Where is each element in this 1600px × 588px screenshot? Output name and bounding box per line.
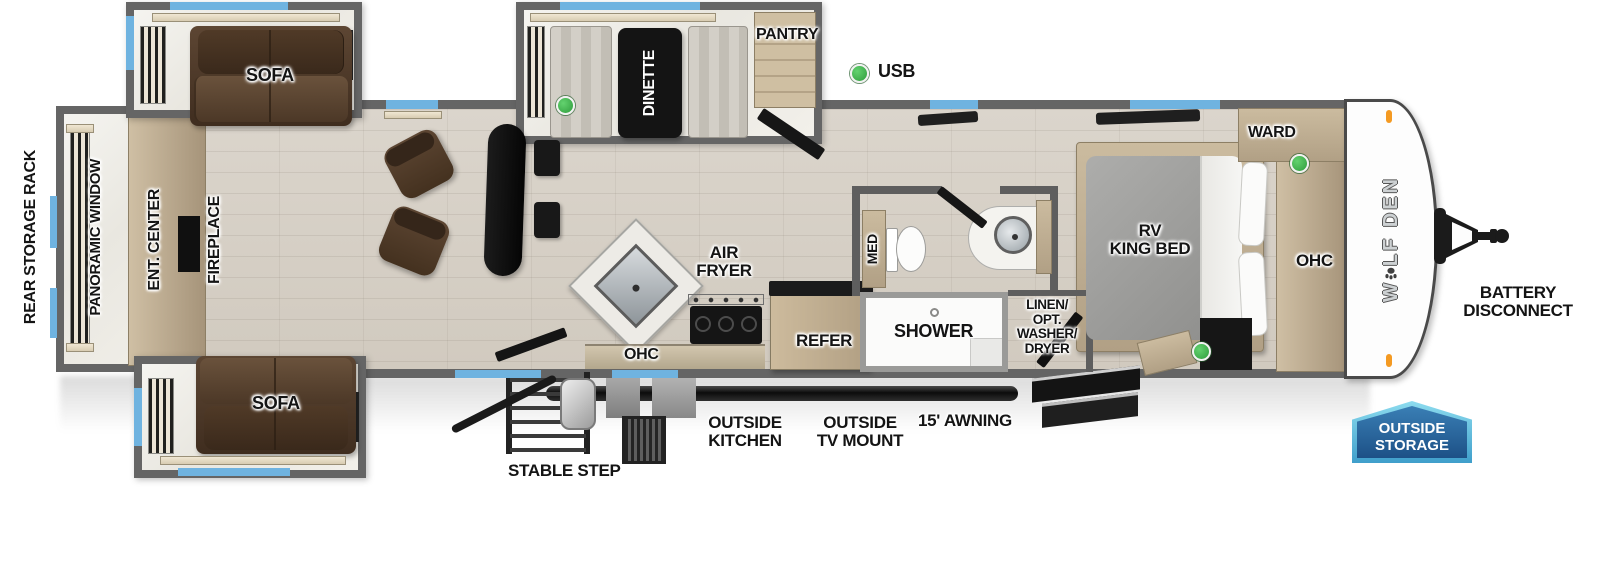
stove-knob-strip (688, 294, 764, 305)
linen-line4: DRYER (1008, 342, 1086, 357)
usb-legend-label: USB (878, 62, 915, 81)
bottom-wall-window-2 (612, 370, 678, 378)
sofa-bottom-label: SOFA (252, 394, 300, 413)
bath-wall-left (852, 186, 860, 296)
sofa-slide-bottom-valance (160, 456, 346, 465)
outside-kitchen-box-2 (652, 378, 696, 418)
front-cap: WLF DEN (1344, 99, 1438, 379)
linen-wall-top (1008, 290, 1092, 296)
dinette-bench-right (688, 26, 748, 138)
burner-1 (695, 316, 711, 332)
sofa-slide-top-side-window (126, 16, 134, 70)
outside-storage-line2: STORAGE (1357, 437, 1467, 454)
outside-tv-mount-label: OUTSIDE TV MOUNT (806, 414, 914, 451)
battery-line2: DISCONNECT (1436, 302, 1600, 320)
toilet-bowl (896, 226, 926, 272)
stove (688, 294, 764, 346)
air-fryer-line2: FRYER (680, 262, 768, 280)
dinette-bench-left (550, 26, 612, 138)
stove-cooktop (690, 306, 762, 344)
brand-suffix: LF DEN (1380, 176, 1402, 266)
brand-prefix: W (1380, 280, 1402, 302)
ent-center-label: ENT. CENTER (146, 189, 163, 291)
top-wall-window-2 (930, 100, 978, 109)
brand-logo: WLF DEN (1380, 176, 1403, 302)
panoramic-window-valance-top (66, 124, 94, 133)
outside-kitchen-line2: KITCHEN (699, 432, 791, 450)
outside-kitchen-box-1 (606, 378, 640, 418)
dinette-blinds (527, 26, 545, 118)
usb-legend-dot (850, 64, 869, 83)
bath-sink-drain (1012, 234, 1018, 240)
usb-port-dinette (556, 96, 575, 115)
rv-king-bed-label: RV KING BED (1090, 222, 1210, 259)
floorplan-canvas: REAR STORAGE RACK PANORAMIC WINDOW ENT. … (0, 0, 1600, 588)
usb-port-bedroom (1192, 342, 1211, 361)
rear-storage-rack-label: REAR STORAGE RACK (22, 150, 39, 324)
linen-label: LINEN/ OPT. WASHER/ DRYER (1008, 298, 1086, 356)
pantry-label: PANTRY (756, 26, 818, 43)
battery-line1: BATTERY (1436, 284, 1600, 302)
bar-stool-2 (534, 202, 560, 238)
kitchen-sink (594, 244, 679, 329)
outside-kitchen-line1: OUTSIDE (699, 414, 791, 432)
bath-wall-top-left (852, 186, 942, 194)
panoramic-window-label: PANORAMIC WINDOW (88, 159, 104, 316)
linen-line3: WASHER/ (1008, 327, 1086, 342)
top-wall-window-1 (386, 100, 438, 109)
sofa-slide-top-blinds (140, 26, 166, 104)
air-fryer-label: AIR FRYER (680, 244, 768, 281)
dinette-label: DINETTE (641, 50, 658, 116)
kitchen-ohc-label: OHC (624, 346, 659, 363)
rear-window-upper (50, 196, 57, 248)
med-label: MED (865, 234, 880, 264)
bar-stool-1 (534, 140, 560, 176)
burner-3 (741, 316, 757, 332)
rv-king-bed-line1: RV (1090, 222, 1210, 240)
air-fryer-line1: AIR (680, 244, 768, 262)
sofa-slide-bottom-side-window (134, 388, 142, 446)
usb-port-ward (1290, 154, 1309, 173)
awning-label: 15' AWNING (918, 412, 1012, 430)
outside-kitchen-label: OUTSIDE KITCHEN (699, 414, 791, 451)
linen-line1: LINEN/ (1008, 298, 1086, 313)
dinette-table: DINETTE (618, 28, 682, 138)
shower-seat (970, 338, 1002, 366)
bath-backsplash (1036, 200, 1052, 274)
paw-icon (1384, 266, 1398, 280)
fireplace-insert (178, 216, 200, 272)
shower-label: SHOWER (894, 322, 973, 341)
refer-label: REFER (796, 332, 852, 350)
stable-step-label: STABLE STEP (508, 462, 621, 480)
refrigerator (770, 284, 870, 370)
marker-light-top (1386, 110, 1392, 123)
outside-tv-line2: TV MOUNT (806, 432, 914, 450)
bar-table (483, 123, 526, 276)
battery-disconnect-label: BATTERY DISCONNECT (1436, 284, 1600, 321)
sofa-slide-bottom-window (178, 468, 290, 476)
fireplace-label: FIREPLACE (206, 196, 223, 284)
burner-2 (718, 316, 734, 332)
sofa-top-label: SOFA (246, 66, 294, 85)
marker-light-bottom (1386, 354, 1392, 367)
shower-drain (930, 308, 939, 317)
outside-tv-line1: OUTSIDE (806, 414, 914, 432)
sofa-slide-bottom-blinds (148, 378, 174, 454)
ward-label: WARD (1248, 124, 1296, 141)
bed-pillow-1 (1238, 161, 1268, 246)
dinette-slide-window (560, 2, 700, 10)
kitchen-ohc-counter (585, 344, 765, 369)
rear-window-lower (50, 288, 57, 338)
utility-grate (622, 416, 666, 464)
bedroom-ohc-label: OHC (1296, 252, 1333, 270)
top-wall-window-3 (1130, 100, 1220, 109)
sofa-slide-top-valance (152, 13, 340, 22)
sofa-slide-top-window (170, 2, 288, 10)
outside-storage-badge: OUTSIDE STORAGE (1352, 401, 1472, 463)
linen-line2: OPT. (1008, 313, 1086, 328)
panoramic-window-valance-bottom (66, 343, 94, 352)
bath-sink (994, 216, 1032, 254)
outside-storage-badge-inner: OUTSIDE STORAGE (1357, 406, 1467, 458)
outside-storage-line1: OUTSIDE (1357, 420, 1467, 437)
sink-drain (631, 283, 641, 293)
top-wall-valance (384, 111, 442, 119)
hitch-coupler (1434, 204, 1518, 268)
rv-king-bed-line2: KING BED (1090, 240, 1210, 258)
dinette-valance (530, 13, 716, 22)
outside-kitchen-door (560, 378, 596, 430)
bottom-wall-window-1 (455, 370, 541, 378)
